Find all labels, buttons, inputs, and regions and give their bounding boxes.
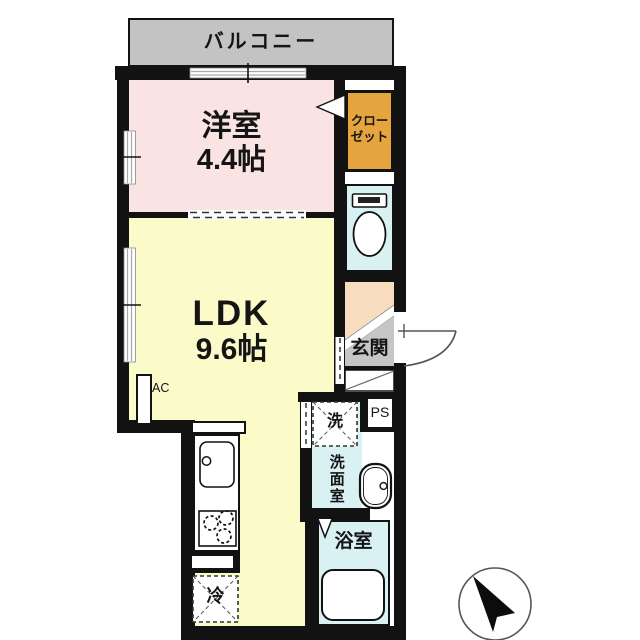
entrance-door-gap: [394, 312, 406, 363]
toilet-room: [345, 184, 394, 272]
room-ldk-mid: [128, 394, 300, 420]
closet-label: クロー ゼット: [345, 114, 394, 145]
wall-toilet-hall: [345, 270, 394, 282]
ac-unit: [136, 374, 152, 425]
wall-washroom-left: [300, 392, 312, 522]
wall-western-ldk: [128, 212, 335, 218]
kitchen-counter-ledge: [191, 421, 246, 434]
ldk-name: LDK: [128, 294, 335, 333]
closet-label-line2: ゼット: [345, 130, 394, 146]
washer-label: 洗: [313, 413, 357, 431]
ac-label: AC: [152, 381, 182, 395]
ldk-label: LDK 9.6帖: [128, 294, 335, 367]
ldk-size: 9.6帖: [128, 333, 335, 367]
entrance-door-arc-icon: [398, 324, 456, 366]
balcony-label: バルコニー: [128, 31, 394, 53]
wall-bathroom-left: [305, 515, 317, 626]
bathroom-label: 浴室: [317, 531, 390, 552]
western-room-size: 4.4帖: [128, 144, 335, 176]
entrance-hall-area: [345, 282, 394, 392]
floorplan-canvas: バルコニー 洋室 4.4帖 クロー ゼット LDK 9.6帖 玄関 AC PS …: [0, 0, 640, 640]
entrance-label: 玄関: [345, 338, 394, 359]
vanity-basin-icon: [360, 464, 391, 508]
counter-end-slot: [192, 556, 233, 568]
western-room-name: 洋室: [128, 110, 335, 144]
washroom-label: 洗面室: [327, 448, 344, 510]
compass-north-icon: [459, 568, 531, 640]
closet-label-line1: クロー: [345, 114, 394, 130]
wall-top: [115, 66, 406, 80]
western-room-label: 洋室 4.4帖: [128, 110, 335, 176]
kitchen-counter: [193, 434, 240, 552]
wall-bottom: [181, 626, 406, 640]
fridge-label: 冷: [193, 586, 238, 606]
ps-label: PS: [368, 405, 392, 421]
wall-center-column: [334, 66, 345, 406]
